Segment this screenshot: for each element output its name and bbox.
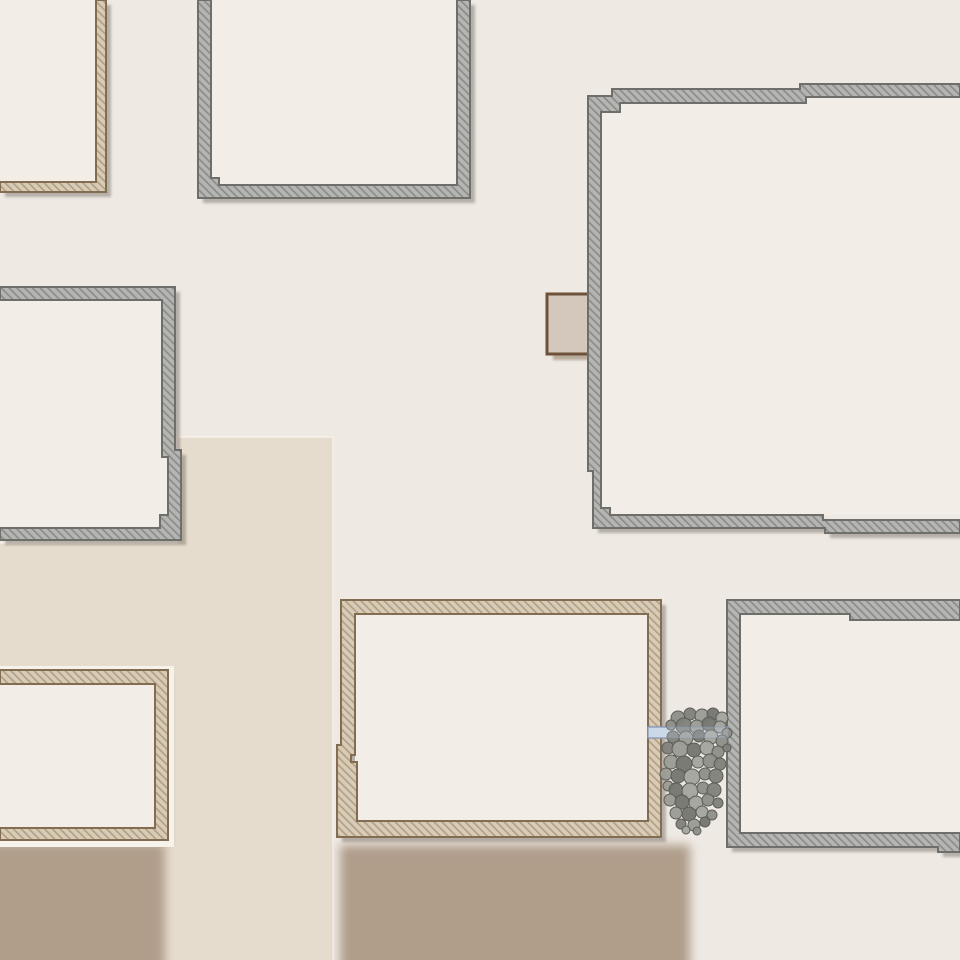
rock <box>696 806 708 818</box>
rock <box>692 756 704 768</box>
bare-ground-patch <box>340 845 690 960</box>
rock <box>702 794 714 806</box>
building-mid-left <box>0 287 186 545</box>
map-canvas <box>0 0 960 960</box>
building-top-center-floor <box>211 0 457 185</box>
building-top-right <box>588 84 960 538</box>
building-top-left-floor <box>0 0 96 182</box>
rock <box>723 744 731 752</box>
building-mid-left-floor <box>160 457 168 515</box>
map-viewport[interactable] <box>0 0 960 960</box>
bare-ground-patch <box>0 843 165 960</box>
building-mid-left-floor <box>0 300 162 528</box>
building-top-center <box>198 0 475 203</box>
building-bottom-right <box>727 600 960 857</box>
rock <box>687 743 701 757</box>
dirt-path-area <box>177 437 333 960</box>
rock <box>713 798 723 808</box>
rock <box>672 741 688 757</box>
rock <box>700 817 710 827</box>
rock <box>682 826 690 834</box>
rock <box>670 807 682 819</box>
rock <box>693 827 701 835</box>
rock <box>664 794 676 806</box>
rock <box>660 768 672 780</box>
building-bottom-right-floor <box>740 614 960 833</box>
rock <box>714 758 726 770</box>
rock <box>671 769 685 783</box>
building-bottom-left <box>0 666 174 847</box>
building-top-right-floor <box>601 97 960 515</box>
building-bottom-center <box>337 600 666 842</box>
rock <box>709 769 723 783</box>
building-top-left <box>0 0 111 197</box>
rock <box>684 769 700 785</box>
building-bottom-center-floor <box>355 614 648 821</box>
plank-bridge-overlay <box>648 727 728 738</box>
building-bottom-left-floor <box>0 684 155 828</box>
